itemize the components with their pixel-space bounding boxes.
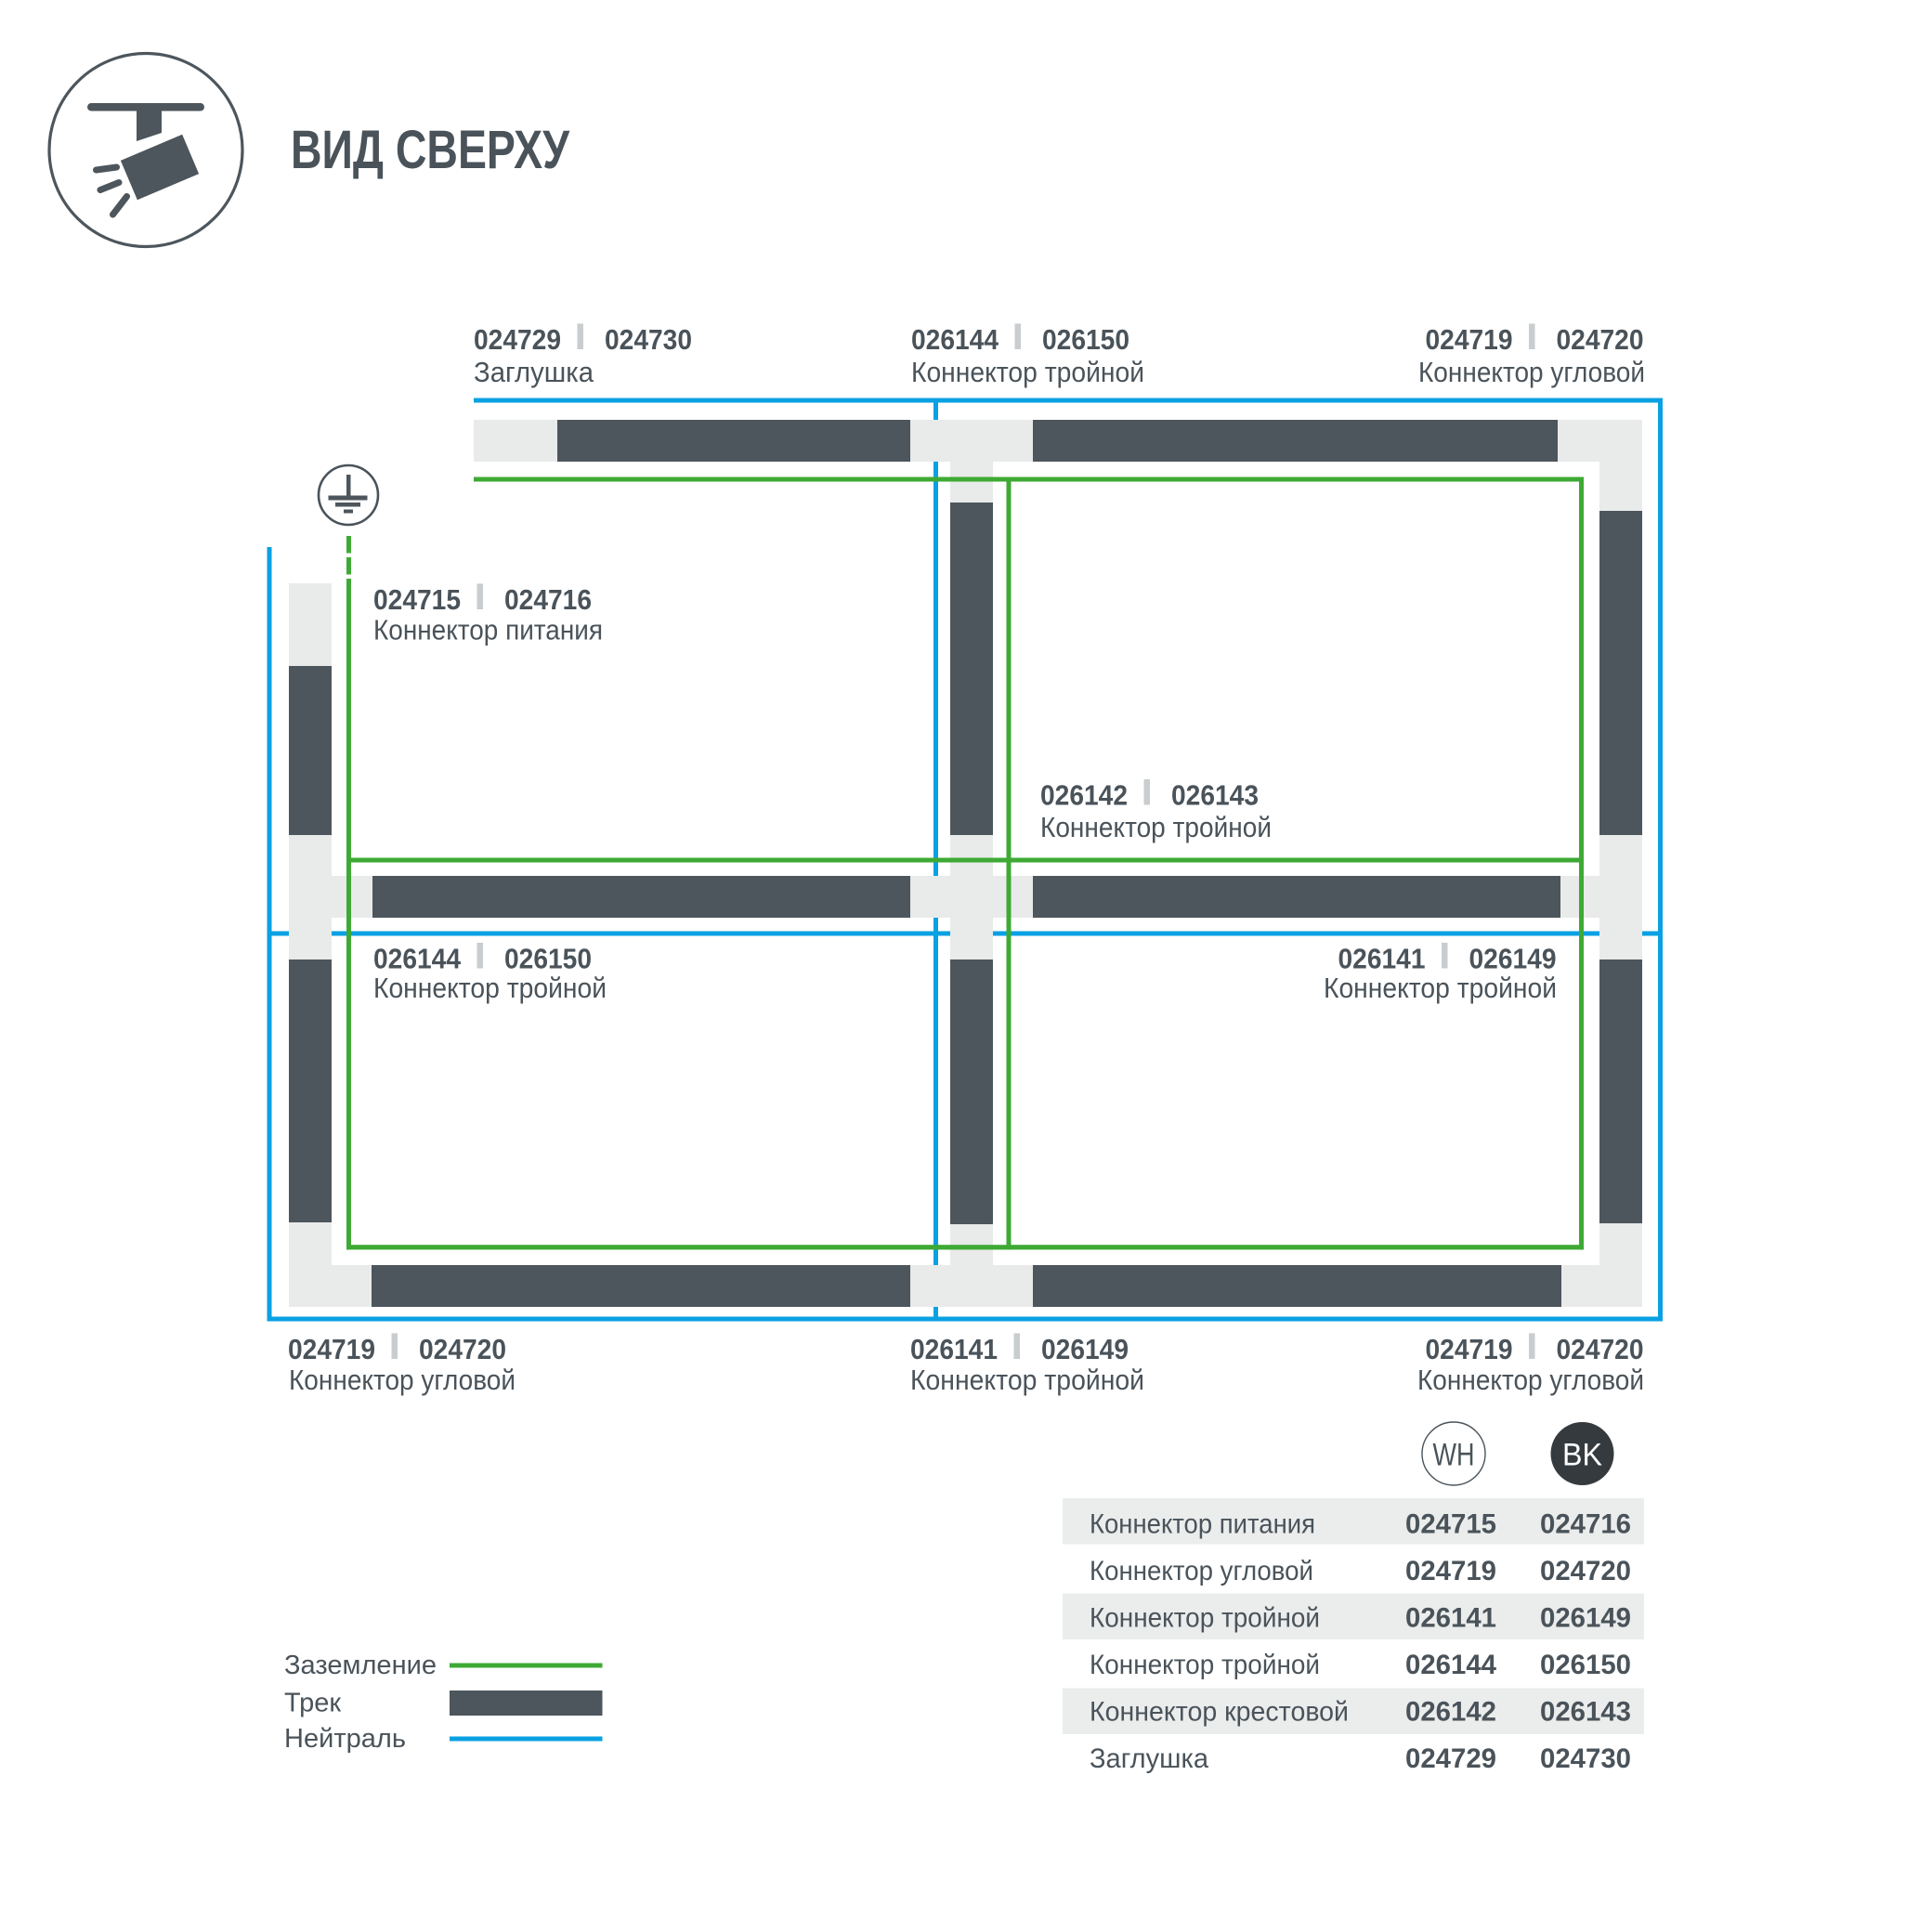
svg-text:024719: 024719 xyxy=(1426,323,1513,356)
svg-text:026142: 026142 xyxy=(1405,1697,1496,1728)
svg-text:Коннектор тройной: Коннектор тройной xyxy=(1090,1603,1320,1634)
svg-text:Коннектор угловой: Коннектор угловой xyxy=(1090,1556,1313,1586)
svg-text:026149: 026149 xyxy=(1469,943,1557,975)
svg-text:024720: 024720 xyxy=(419,1333,506,1365)
svg-text:Коннектор крестовой: Коннектор крестовой xyxy=(1090,1697,1349,1728)
svg-text:Заземление: Заземление xyxy=(284,1651,437,1680)
svg-text:Коннектор тройной: Коннектор тройной xyxy=(1040,811,1272,843)
svg-text:024715: 024715 xyxy=(1405,1509,1496,1540)
svg-text:026149: 026149 xyxy=(1041,1333,1129,1365)
svg-text:Коннектор тройной: Коннектор тройной xyxy=(910,1364,1144,1396)
svg-text:026143: 026143 xyxy=(1540,1697,1631,1728)
svg-text:024729: 024729 xyxy=(1405,1743,1496,1774)
svg-text:024716: 024716 xyxy=(504,583,592,616)
svg-text:026143: 026143 xyxy=(1171,779,1259,812)
svg-text:024720: 024720 xyxy=(1557,323,1644,356)
svg-text:024729: 024729 xyxy=(474,323,561,356)
svg-text:024730: 024730 xyxy=(1540,1743,1631,1774)
svg-text:Коннектор угловой: Коннектор угловой xyxy=(1417,1364,1644,1396)
svg-text:026150: 026150 xyxy=(504,943,592,975)
svg-text:Коннектор питания: Коннектор питания xyxy=(1090,1509,1315,1540)
svg-text:Коннектор тройной: Коннектор тройной xyxy=(373,972,607,1004)
svg-text:026149: 026149 xyxy=(1540,1603,1631,1634)
svg-text:Коннектор питания: Коннектор питания xyxy=(373,614,603,646)
svg-text:Коннектор тройной: Коннектор тройной xyxy=(1324,972,1557,1004)
svg-text:Заглушка: Заглушка xyxy=(474,356,594,388)
svg-text:024716: 024716 xyxy=(1540,1509,1631,1540)
svg-text:024720: 024720 xyxy=(1540,1556,1631,1586)
svg-text:Коннектор угловой: Коннектор угловой xyxy=(289,1364,516,1396)
svg-text:026142: 026142 xyxy=(1040,779,1128,812)
svg-text:BK: BK xyxy=(1562,1438,1602,1473)
svg-text:Коннектор угловой: Коннектор угловой xyxy=(1418,356,1645,388)
svg-text:Коннектор тройной: Коннектор тройной xyxy=(911,356,1144,388)
svg-text:026144: 026144 xyxy=(373,943,462,975)
svg-text:024730: 024730 xyxy=(605,323,692,356)
svg-text:026141: 026141 xyxy=(910,1333,998,1365)
svg-text:024719: 024719 xyxy=(288,1333,375,1365)
svg-text:Нейтраль: Нейтраль xyxy=(284,1724,406,1754)
svg-text:Коннектор тройной: Коннектор тройной xyxy=(1090,1650,1320,1680)
svg-text:026144: 026144 xyxy=(1405,1650,1496,1680)
svg-text:024719: 024719 xyxy=(1405,1556,1496,1586)
svg-text:WH: WH xyxy=(1433,1438,1475,1473)
svg-text:026150: 026150 xyxy=(1540,1650,1631,1680)
svg-text:026150: 026150 xyxy=(1042,323,1129,356)
svg-text:024715: 024715 xyxy=(373,583,461,616)
svg-text:026141: 026141 xyxy=(1338,943,1426,975)
svg-text:ВИД СВЕРХУ: ВИД СВЕРХУ xyxy=(291,120,570,180)
svg-text:024720: 024720 xyxy=(1557,1333,1644,1365)
svg-text:026144: 026144 xyxy=(911,323,999,356)
svg-text:024719: 024719 xyxy=(1426,1333,1513,1365)
svg-text:Заглушка: Заглушка xyxy=(1090,1743,1208,1774)
svg-text:Трек: Трек xyxy=(284,1689,341,1718)
svg-text:026141: 026141 xyxy=(1405,1603,1496,1634)
